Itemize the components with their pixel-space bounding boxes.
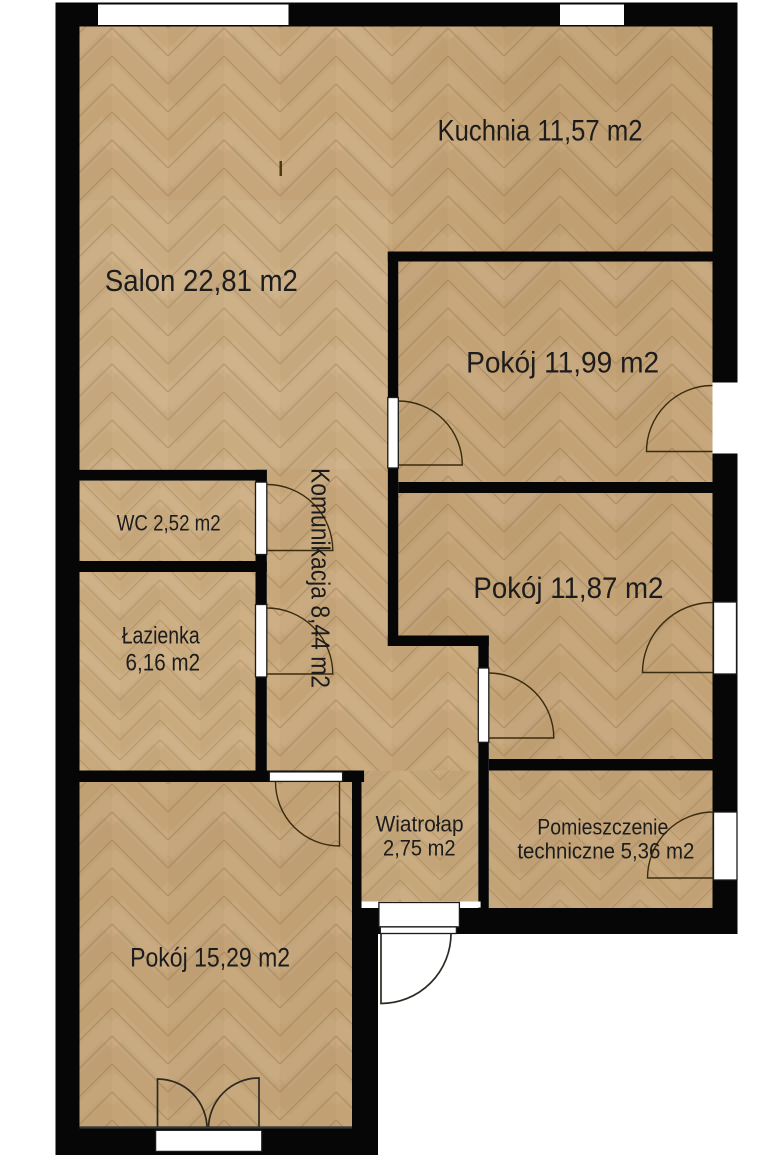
svg-text:WC 2,52 m2: WC 2,52 m2 [117,510,221,535]
svg-text:Salon 22,81 m2: Salon 22,81 m2 [105,264,298,298]
svg-text:Wiatrołap: Wiatrołap [376,812,464,837]
svg-text:6,16 m2: 6,16 m2 [126,650,201,677]
svg-text:Pokój 15,29 m2: Pokój 15,29 m2 [130,943,290,973]
svg-text:Pokój 11,87 m2: Pokój 11,87 m2 [473,572,663,605]
svg-text:Kuchnia 11,57 m2: Kuchnia 11,57 m2 [438,115,643,148]
svg-text:Pomieszczenie: Pomieszczenie [537,815,668,840]
svg-text:2,75 m2: 2,75 m2 [383,836,456,861]
svg-text:Komunikacja 8,44 m2: Komunikacja 8,44 m2 [306,468,334,688]
svg-text:Łazienka: Łazienka [122,622,201,649]
svg-text:techniczne 5,36 m2: techniczne 5,36 m2 [517,839,694,864]
svg-text:Pokój 11,99 m2: Pokój 11,99 m2 [466,347,659,380]
